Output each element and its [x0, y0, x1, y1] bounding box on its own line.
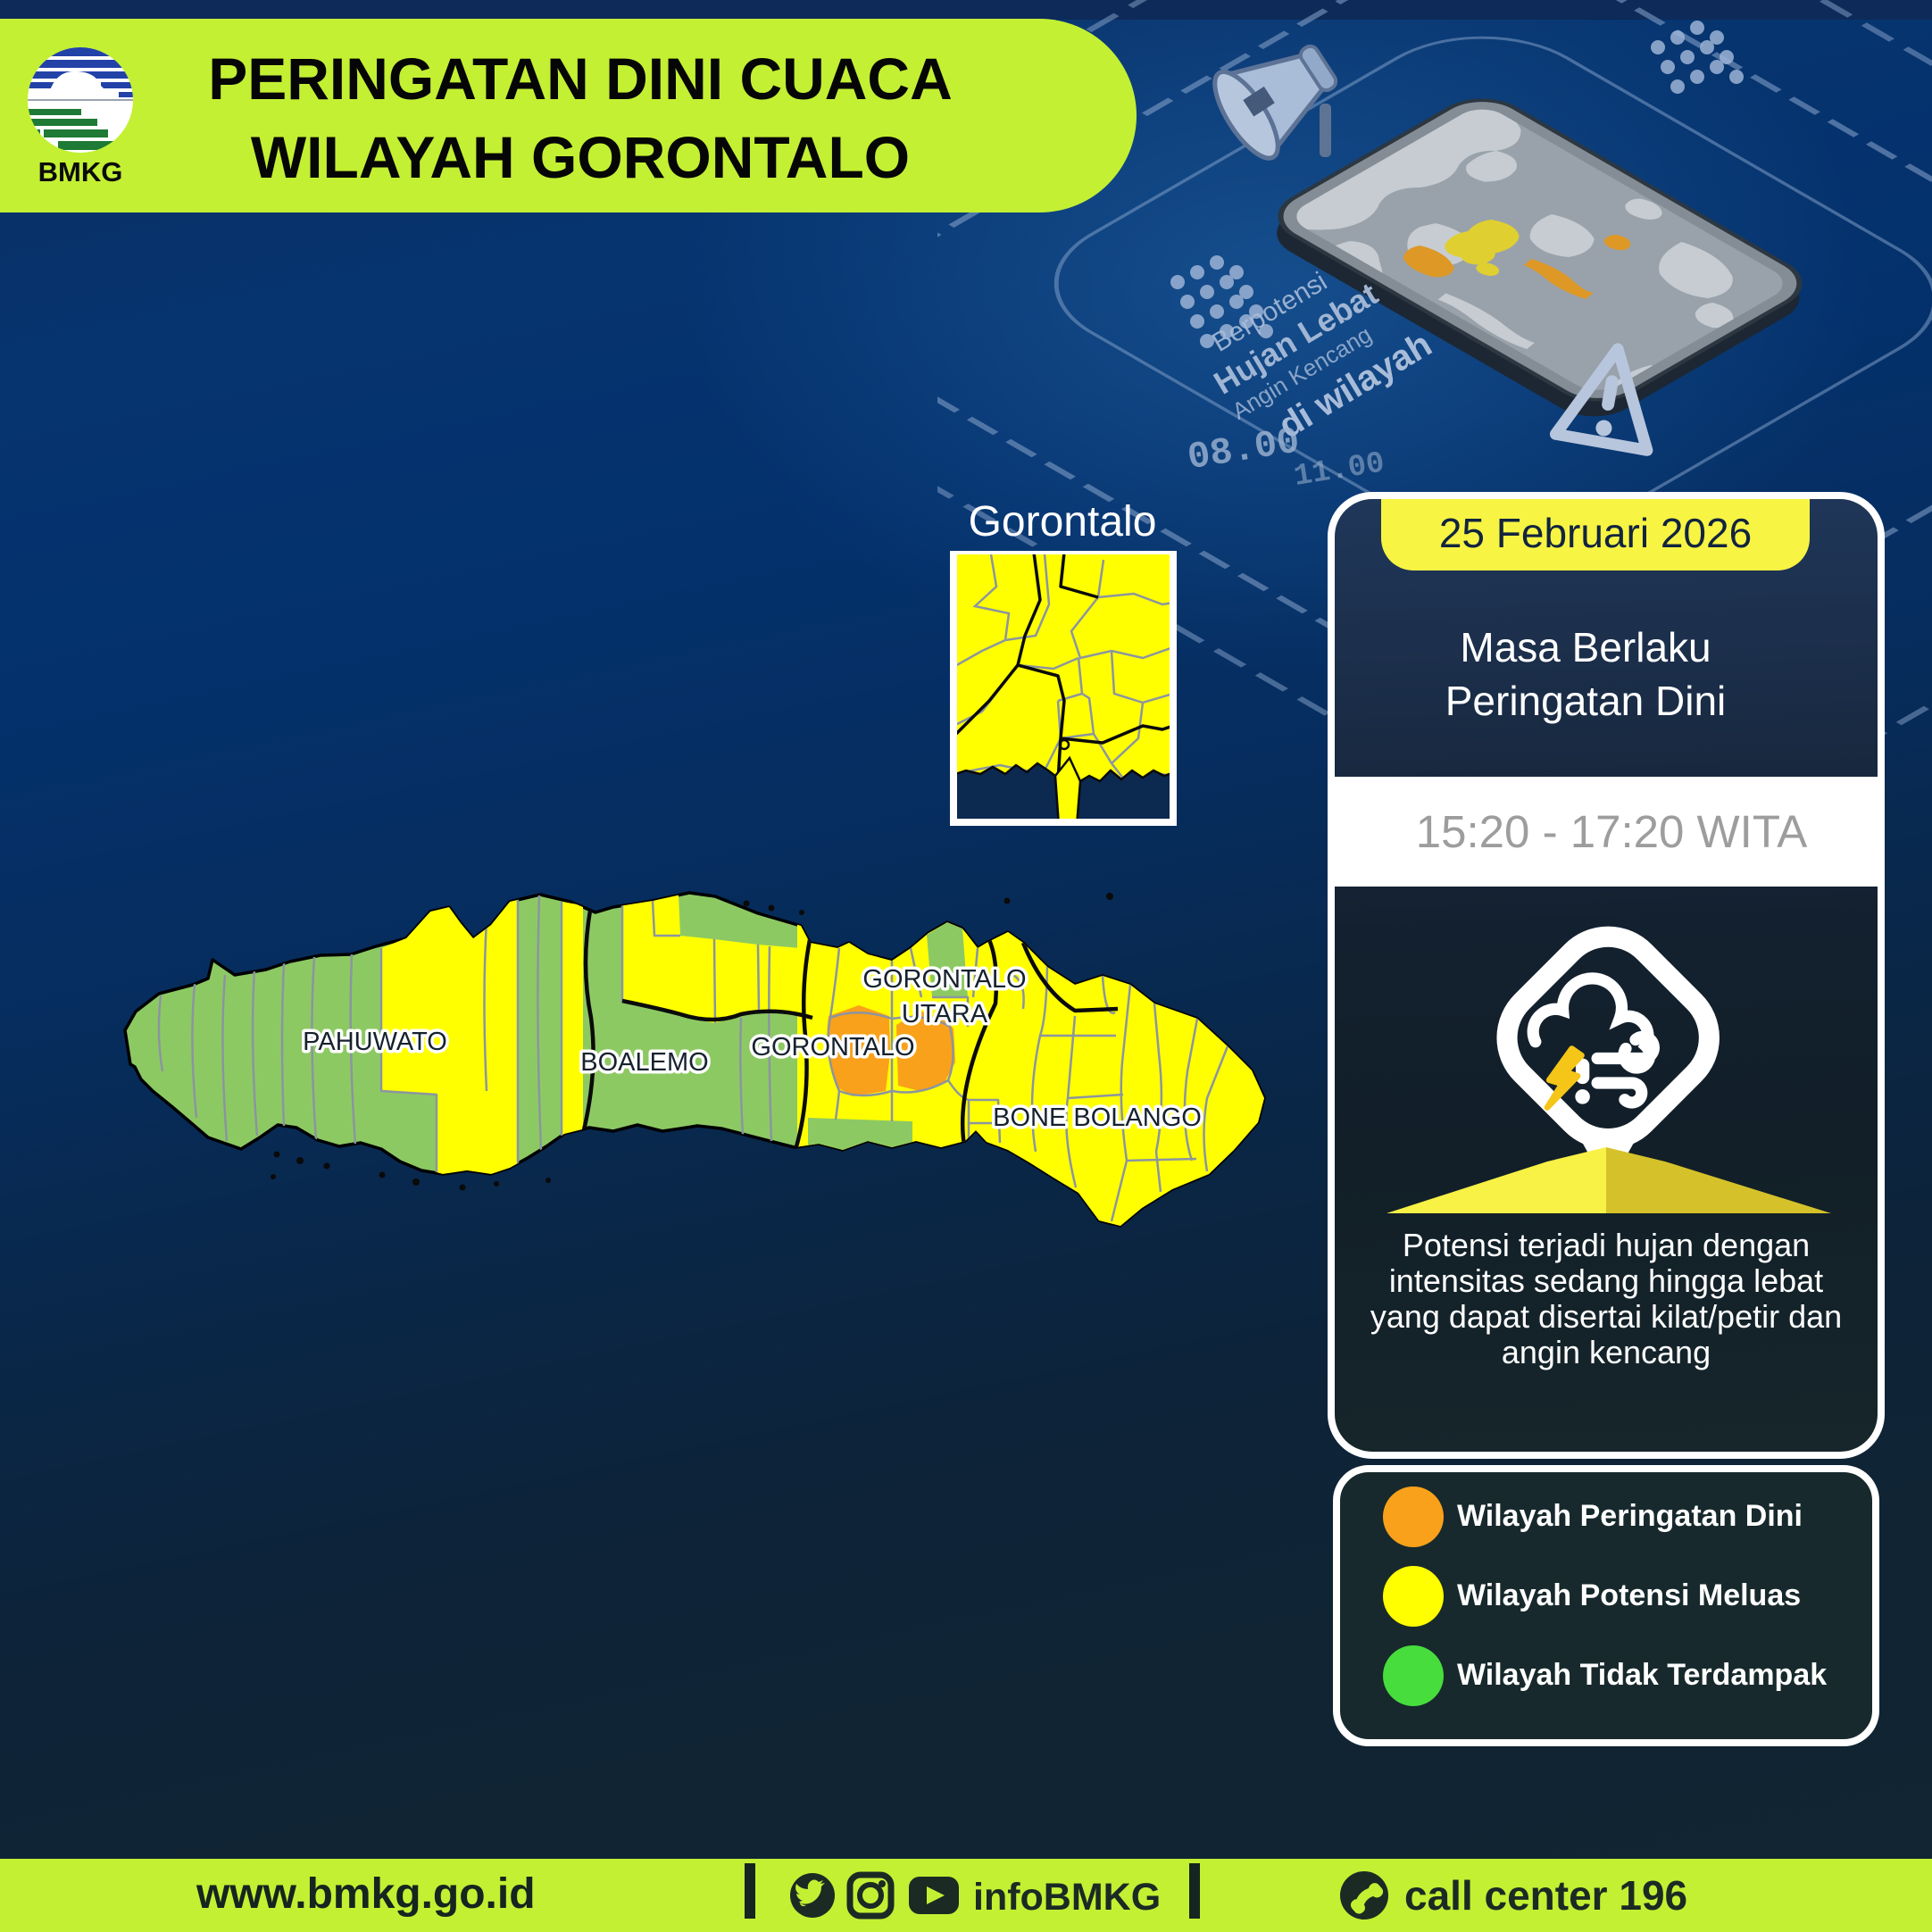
svg-text:UTARA: UTARA: [902, 1000, 988, 1028]
svg-text:11.00: 11.00: [1292, 446, 1387, 494]
svg-text:PAHUWATO: PAHUWATO: [303, 1028, 447, 1056]
svg-text:GORONTALO: GORONTALO: [751, 1033, 914, 1062]
svg-text:GORONTALO: GORONTALO: [862, 965, 1026, 994]
svg-text:BMKG: BMKG: [38, 156, 123, 187]
svg-text:08.00: 08.00: [1185, 420, 1303, 479]
svg-text:infoBMKG: infoBMKG: [973, 1876, 1161, 1919]
svg-text:call center 196: call center 196: [1404, 1872, 1687, 1919]
svg-text:BOALEMO: BOALEMO: [580, 1048, 708, 1077]
svg-text:BONE BOLANGO: BONE BOLANGO: [993, 1103, 1202, 1132]
